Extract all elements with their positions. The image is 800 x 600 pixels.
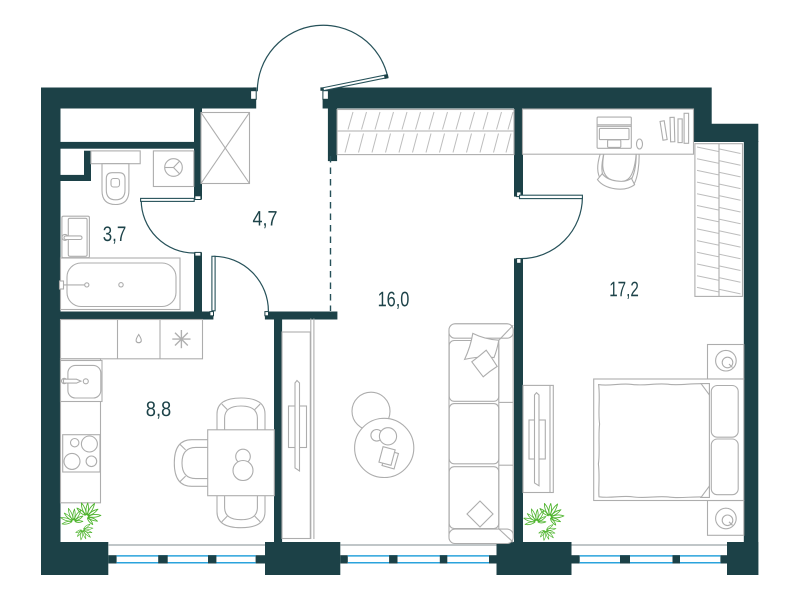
svg-text:16,0: 16,0: [378, 288, 410, 311]
svg-text:3,7: 3,7: [103, 223, 127, 246]
svg-text:17,2: 17,2: [609, 278, 639, 301]
svg-text:8,8: 8,8: [146, 398, 172, 421]
svg-text:4,7: 4,7: [252, 207, 277, 230]
